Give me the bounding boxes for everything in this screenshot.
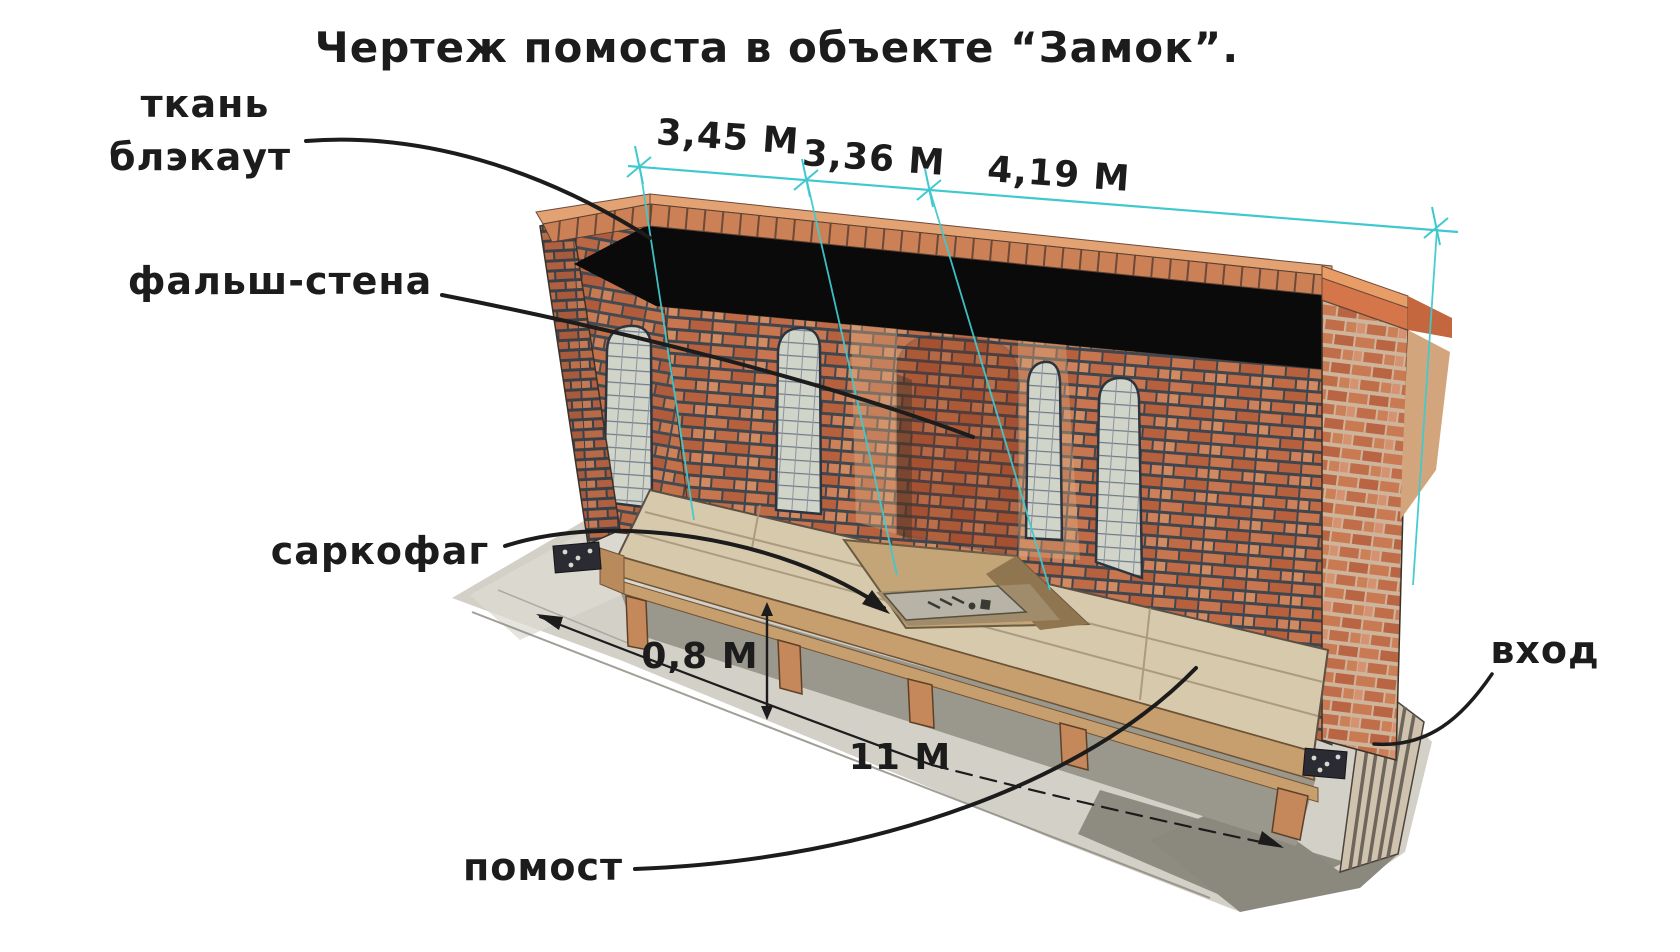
right-pillar-side <box>1400 330 1450 520</box>
dimension-text-height: 0,8 М <box>641 636 758 677</box>
buttress-left <box>850 296 897 534</box>
castle-platform-diagram: Чертеж помоста в объекте “Замок”. ткань … <box>0 0 1680 952</box>
right-pillar-face <box>1322 300 1408 760</box>
label-fabric-line1: ткань <box>141 82 270 126</box>
dimension-text-length: 11 М <box>849 737 951 778</box>
gothic-window-4 <box>1096 378 1142 578</box>
label-platform: помост <box>463 845 623 889</box>
label-false-wall: фальш-стена <box>128 259 433 303</box>
dimension-text-top-left: 3,45 М <box>655 112 801 163</box>
label-entrance: вход <box>1490 628 1599 672</box>
gothic-window-2 <box>776 328 821 514</box>
false-wall-niche-tint <box>897 336 1018 556</box>
drawing-canvas: Чертеж помоста в объекте “Замок”. ткань … <box>0 0 1680 952</box>
diagram-title: Чертеж помоста в объекте “Замок”. <box>315 23 1239 72</box>
gothic-window-3 <box>1026 362 1062 540</box>
niche-inner-shadow <box>897 374 912 540</box>
label-fabric-line2: блэкаут <box>109 135 291 179</box>
platform-leg <box>908 679 934 728</box>
platform-leg <box>778 640 802 694</box>
dimension-text-top-middle: 3,36 М <box>801 133 947 184</box>
label-sarcophagus: саркофаг <box>271 529 489 573</box>
dimension-text-top-right: 4,19 М <box>986 149 1132 200</box>
